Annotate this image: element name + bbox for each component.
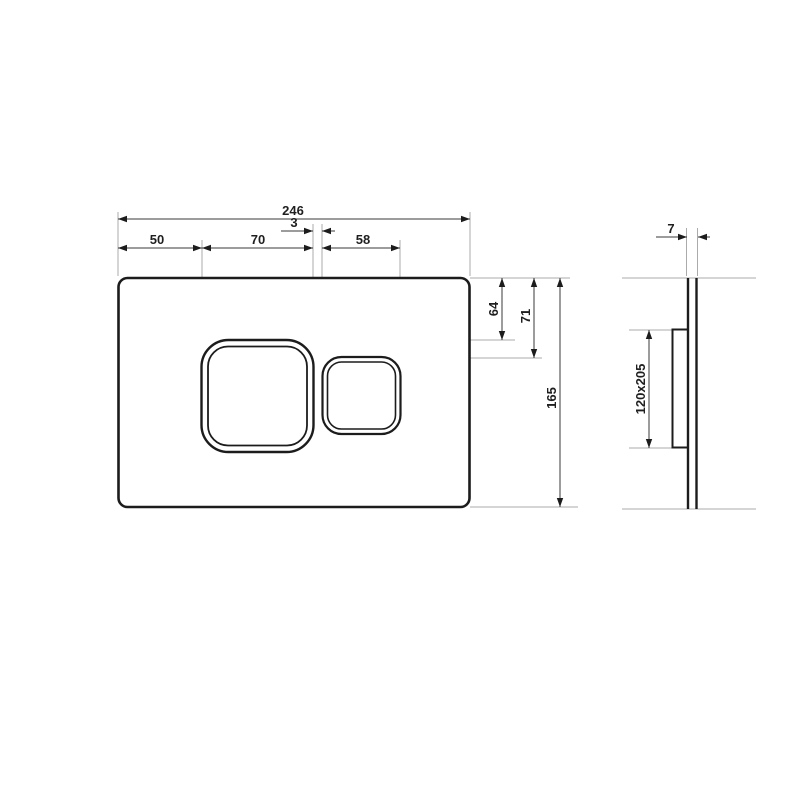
front-view: 246 3 50 70 58 64 71 — [118, 203, 578, 507]
side-frame-box — [673, 330, 688, 448]
dim-large-button-width-label: 70 — [251, 232, 265, 247]
dim-165-label: 165 — [544, 387, 559, 409]
dim-chain: 50 70 58 — [118, 232, 400, 251]
dim-120x205-label: 120x205 — [633, 364, 648, 415]
dim-left-offset-label: 50 — [150, 232, 164, 247]
side-plate-faces — [688, 278, 697, 509]
dim-small-button-top-offset: 71 — [518, 278, 537, 358]
dim-overall-height: 165 — [544, 278, 563, 507]
drawing-page: 246 3 50 70 58 64 71 — [0, 0, 800, 800]
plate-outline — [119, 278, 470, 507]
side-view: 7 120x205 — [622, 221, 756, 509]
dim-64-label: 64 — [486, 301, 501, 316]
dim-7-label: 7 — [667, 221, 674, 236]
dim-small-button-width-label: 58 — [356, 232, 370, 247]
dim-71-label: 71 — [518, 309, 533, 323]
technical-drawing-canvas: 246 3 50 70 58 64 71 — [0, 0, 800, 800]
dim-button-gap-arrows — [304, 228, 331, 234]
dim-plate-thickness: 7 — [656, 221, 710, 240]
dim-frame-size: 120x205 — [633, 330, 652, 448]
dim-7-arrows — [678, 234, 707, 240]
dim-button-gap-label: 3 — [290, 215, 297, 230]
dim-large-button-top-offset: 64 — [486, 278, 505, 340]
